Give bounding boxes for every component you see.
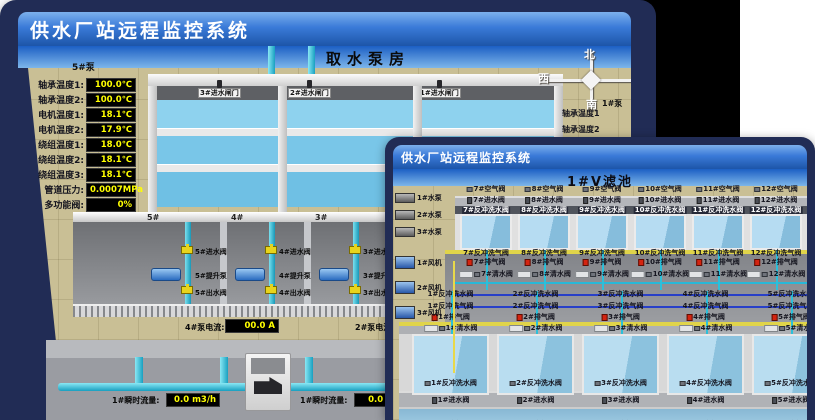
pipe-stub xyxy=(220,357,228,385)
panel-row: 多功能阀: 0% xyxy=(26,197,138,212)
filter-pool: 3#反冲洗水阀 xyxy=(582,334,659,395)
pump5-measure-panel: 5#泵 轴承温度1: 100.0℃ 轴承温度2: 100.0℃ xyxy=(26,60,138,212)
flow-label: 1#瞬时流量: xyxy=(112,395,159,406)
equipment-item: 3#风机 xyxy=(395,300,459,325)
backwash-water-valve[interactable]: 4#反冲洗水阀 xyxy=(683,291,729,298)
clean-water-valve[interactable]: 3#清水阀 xyxy=(594,325,648,332)
backwash-water-valve[interactable]: 5#反冲洗水阀 xyxy=(768,291,807,298)
panel-value-display: 18.1℃ xyxy=(86,108,136,122)
equipment-box xyxy=(509,325,523,332)
panel-value-display: 100.0℃ xyxy=(86,93,136,107)
bay-number: 3# xyxy=(315,213,327,222)
outlet-valve-icon[interactable] xyxy=(349,286,361,294)
desktop: 供水厂站远程监控系统 取水泵房 5#泵 轴承温度1: 100.0℃ xyxy=(0,0,815,420)
flow-label: 1#瞬时流量: xyxy=(300,395,347,406)
pool-valve-icon[interactable] xyxy=(509,381,515,386)
pipe-stub xyxy=(305,357,313,385)
backwash-water-valve-label: 3#反冲洗水阀 xyxy=(598,291,644,298)
outlet-valve-icon[interactable] xyxy=(181,286,193,294)
clean-water-valve-label: 4#清水阀 xyxy=(701,325,733,332)
backwash-air-valve-label: 5#反冲洗气阀 xyxy=(768,303,807,310)
inlet-valve-icon[interactable] xyxy=(265,246,277,254)
inlet-valve-icon[interactable] xyxy=(517,397,522,404)
pump-icon[interactable] xyxy=(395,227,415,237)
filter-cell-bottom: 3#反冲洗水阀 3#反冲洗气阀 3#排气阀 3#清水阀 3#反冲洗水阀 3#进水… xyxy=(578,291,663,420)
filter-cell-bottom: 5#反冲洗水阀 5#反冲洗气阀 5#排气阀 5#清水阀 5#反冲洗水阀 5#进水… xyxy=(748,291,807,420)
gate-icon[interactable] xyxy=(217,80,222,88)
exhaust-valve[interactable]: 5#排气阀 xyxy=(771,314,807,321)
pool-backwash-valve[interactable]: 4#反冲洗水阀 xyxy=(679,380,732,387)
panel-label: 绕组温度2: xyxy=(26,153,84,166)
inlet-gate[interactable]: 3#进水闸门 xyxy=(198,80,241,98)
exhaust-valve[interactable]: 3#排气阀 xyxy=(601,314,640,321)
pump-bay: 4# 4#进水阀 4#提升泵 4#出水阀 xyxy=(227,222,311,304)
pool-valve-label: 2#反冲洗水阀 xyxy=(516,380,562,387)
panel-value-display: 18.1℃ xyxy=(86,153,136,167)
inlet-valve[interactable]: 2#进水阀 xyxy=(517,397,555,404)
panel-row: 电机温度2: 17.9℃ xyxy=(26,122,138,137)
filter-pool: 5#反冲洗水阀 xyxy=(752,334,807,395)
filter-cell-bottom: 2#反冲洗水阀 2#反冲洗气阀 2#排气阀 2#清水阀 2#反冲洗水阀 2#进水… xyxy=(493,291,578,420)
clean-water-valve-label: 1#清水阀 xyxy=(446,325,478,332)
clean-water-valve-icon[interactable] xyxy=(439,326,445,331)
backwash-air-valve-label: 2#反冲洗气阀 xyxy=(513,303,559,310)
panel-label: 电机温度2: xyxy=(26,123,84,136)
equipment-box xyxy=(594,325,608,332)
pump-bay: 5# 5#进水阀 5#提升泵 5#出水阀 xyxy=(143,222,227,304)
inlet-valve-icon[interactable] xyxy=(772,397,777,404)
back-window-titlebar[interactable]: 供水厂站远程监控系统 xyxy=(18,12,631,46)
backwash-air-valve[interactable]: 2#反冲洗气阀 xyxy=(513,303,559,310)
clean-water-valve-label: 5#清水阀 xyxy=(786,325,807,332)
panel-value-display: 17.9℃ xyxy=(86,123,136,137)
pool-valve-icon[interactable] xyxy=(679,381,685,386)
inlet-valve-label: 3#进水阀 xyxy=(608,397,640,404)
equipment-box xyxy=(424,325,438,332)
panel-row: 绕组温度1: 18.0℃ xyxy=(26,137,138,152)
panel-label: 绕组温度3: xyxy=(26,168,84,181)
inlet-valve-icon[interactable] xyxy=(432,397,437,404)
inlet-gate[interactable]: 1#进水闸门 xyxy=(418,80,461,98)
panel-label: 管道压力: xyxy=(26,183,84,196)
equipment-label: 2#水泵 xyxy=(417,210,442,220)
filter-scene: 1#V滤池 1#水泵 2#水泵 3#水泵 xyxy=(393,169,807,420)
gate-icon[interactable] xyxy=(437,80,442,88)
bay-number: 4# xyxy=(231,213,243,222)
compass-star xyxy=(581,70,601,90)
clean-water-valve[interactable]: 2#清水阀 xyxy=(509,325,563,332)
panel-label: 多功能阀: xyxy=(26,198,84,211)
panel-row: 绕组温度2: 18.1℃ xyxy=(26,152,138,167)
gate-label: 1#进水闸门 xyxy=(418,88,461,98)
pump-icon[interactable] xyxy=(395,256,415,269)
exhaust-valve-label: 4#排气阀 xyxy=(693,314,725,321)
camera-panel xyxy=(251,358,285,374)
inlet-valve[interactable]: 4#进水阀 xyxy=(687,397,725,404)
panel-label: 轴承温度1: xyxy=(26,78,84,91)
inlet-valve-label: 4#进水阀 xyxy=(279,247,311,257)
current-label: 4#泵电流: xyxy=(185,322,224,333)
vent-pipe xyxy=(268,46,275,76)
filter-pool: 2#反冲洗水阀 xyxy=(497,334,574,395)
equipment-label: 1#风机 xyxy=(417,258,442,268)
inlet-valve-icon[interactable] xyxy=(602,397,607,404)
right-panel-label: 轴承温度1 xyxy=(562,108,631,124)
lift-pump-icon[interactable] xyxy=(151,268,181,281)
exhaust-valve-icon[interactable] xyxy=(771,314,777,321)
inlet-valve[interactable]: 1#进水阀 xyxy=(432,397,470,404)
pool-backwash-valve[interactable]: 3#反冲洗水阀 xyxy=(594,380,647,387)
pool-backwash-valve[interactable]: 1#反冲洗水阀 xyxy=(424,380,477,387)
pump-icon[interactable] xyxy=(395,281,415,294)
backwash-water-valve[interactable]: 2#反冲洗水阀 xyxy=(513,291,559,298)
pool-backwash-valve[interactable]: 2#反冲洗水阀 xyxy=(509,380,562,387)
clean-water-valve-icon[interactable] xyxy=(609,326,615,331)
exhaust-valve-label: 2#排气阀 xyxy=(523,314,555,321)
scene-title: 取水泵房 xyxy=(326,48,410,69)
clean-water-valve-icon[interactable] xyxy=(779,326,785,331)
inlet-gate[interactable]: 2#进水闸门 xyxy=(288,80,331,98)
backwash-water-valve-label: 2#反冲洗水阀 xyxy=(513,291,559,298)
inlet-valve-icon[interactable] xyxy=(349,246,361,254)
tank-divider xyxy=(148,86,157,215)
gate-icon[interactable] xyxy=(307,80,312,88)
inlet-valve[interactable]: 3#进水阀 xyxy=(602,397,640,404)
filter-cell-bottom: 4#反冲洗水阀 4#反冲洗气阀 4#排气阀 4#清水阀 4#反冲洗水阀 4#进水… xyxy=(663,291,748,420)
clean-water-valve[interactable]: 5#清水阀 xyxy=(764,325,807,332)
inlet-valve-icon[interactable] xyxy=(181,246,193,254)
backwash-air-valve[interactable]: 4#反冲洗气阀 xyxy=(683,303,729,310)
front-window: 供水厂站远程监控系统 1#V滤池 1#水泵 2#水泵 xyxy=(385,137,815,420)
equipment-item: 2#风机 xyxy=(395,275,459,300)
panel-label: 电机温度1: xyxy=(26,108,84,121)
panel-value-display: 18.0℃ xyxy=(86,138,136,152)
filter-pool: 4#反冲洗水阀 xyxy=(667,334,744,395)
clean-water-valve[interactable]: 4#清水阀 xyxy=(679,325,733,332)
inlet-valve-icon[interactable] xyxy=(687,397,692,404)
exhaust-valve-label: 3#排气阀 xyxy=(608,314,640,321)
backwash-water-valve-label: 5#反冲洗水阀 xyxy=(768,291,807,298)
panel-value-display: 18.1℃ xyxy=(86,168,136,182)
inlet-valve-label: 4#进水阀 xyxy=(693,397,725,404)
clean-water-valve[interactable]: 1#清水阀 xyxy=(424,325,478,332)
clean-water-valve-icon[interactable] xyxy=(524,326,530,331)
exhaust-valve[interactable]: 2#排气阀 xyxy=(516,314,555,321)
inlet-valve[interactable]: 5#进水阀 xyxy=(772,397,807,404)
panel-label: 轴承温度2: xyxy=(26,93,84,106)
right-panel-labels: 轴承温度1 轴承温度2 xyxy=(562,108,631,140)
lift-pump-label: 4#提升泵 xyxy=(279,271,311,281)
panel-value-display: 0% xyxy=(86,198,136,212)
tank-water-row xyxy=(148,100,563,128)
outlet-valve-label: 5#出水阀 xyxy=(195,288,227,298)
tank-divider xyxy=(278,86,287,215)
pipe-stub xyxy=(135,357,143,385)
tank-back-wall: 3#进水闸门 2#进水闸门 1#进水闸门 xyxy=(148,86,563,100)
exhaust-valve-icon[interactable] xyxy=(601,314,607,321)
outlet-valve-icon[interactable] xyxy=(265,286,277,294)
equipment-label: 1#水泵 xyxy=(417,193,442,203)
equipment-item: 2#水泵 xyxy=(395,206,459,223)
compass-north-label: 北 xyxy=(584,46,595,62)
backwash-air-valve[interactable]: 3#反冲洗气阀 xyxy=(598,303,644,310)
panel-label: 绕组温度1: xyxy=(26,138,84,151)
equipment-column: 1#水泵 2#水泵 3#水泵 1#风机 xyxy=(395,189,459,325)
pool-valve-label: 1#反冲洗水阀 xyxy=(431,380,477,387)
exhaust-valve[interactable]: 4#排气阀 xyxy=(686,314,725,321)
inlet-valve-label: 2#进水阀 xyxy=(523,397,555,404)
panel-row: 管道压力: 0.0007MPa xyxy=(26,182,138,197)
panel-value-display: 0.0007MPa xyxy=(86,183,136,197)
backwash-water-valve-label: 4#反冲洗水阀 xyxy=(683,291,729,298)
lift-pump-icon[interactable] xyxy=(319,268,349,281)
tank-beam xyxy=(148,128,563,136)
panel-row: 轴承温度2: 100.0℃ xyxy=(26,92,138,107)
current-display: 00.0 A xyxy=(225,319,279,333)
pump-icon[interactable] xyxy=(395,210,415,220)
filter-pool: 1#反冲洗水阀 xyxy=(412,334,489,395)
pool-valve-icon[interactable] xyxy=(764,381,770,386)
pool-valve-label: 3#反冲洗水阀 xyxy=(601,380,647,387)
equipment-label: 3#风机 xyxy=(417,308,442,318)
backwash-water-valve[interactable]: 3#反冲洗水阀 xyxy=(598,291,644,298)
equipment-item: 1#风机 xyxy=(395,250,459,275)
pool-valve-label: 5#反冲洗水阀 xyxy=(771,380,807,387)
lift-pump-icon[interactable] xyxy=(235,268,265,281)
panel-header: 5#泵 xyxy=(72,60,138,73)
clean-water-valve-label: 3#清水阀 xyxy=(616,325,648,332)
pump-icon[interactable] xyxy=(395,306,415,319)
camera-box[interactable] xyxy=(245,353,291,411)
exhaust-valve-icon[interactable] xyxy=(516,314,522,321)
backwash-air-valve-label: 3#反冲洗气阀 xyxy=(598,303,644,310)
panel-row: 轴承温度1: 100.0℃ xyxy=(26,77,138,92)
panel-rows: 轴承温度1: 100.0℃ 轴承温度2: 100.0℃ 电机温度1: 18.1℃ xyxy=(26,77,138,212)
inlet-valve-label: 1#进水阀 xyxy=(438,397,470,404)
inlet-valve-label: 5#进水阀 xyxy=(195,247,227,257)
clean-water-valve-label: 2#清水阀 xyxy=(531,325,563,332)
gate-label: 3#进水闸门 xyxy=(198,88,241,98)
inlet-valve-label: 5#进水阀 xyxy=(778,397,807,404)
equipment-label: 3#水泵 xyxy=(417,227,442,237)
pool-valve-icon[interactable] xyxy=(594,381,600,386)
panel-value-display: 100.0℃ xyxy=(86,78,136,92)
panel-row: 电机温度1: 18.1℃ xyxy=(26,107,138,122)
equipment-box xyxy=(679,325,693,332)
equipment-item: 3#水泵 xyxy=(395,223,459,240)
front-window-titlebar[interactable]: 供水厂站远程监控系统 xyxy=(393,145,807,169)
outlet-valve-label: 4#出水阀 xyxy=(279,288,311,298)
pool-valve-label: 4#反冲洗水阀 xyxy=(686,380,732,387)
equipment-item: 1#水泵 xyxy=(395,189,459,206)
backwash-air-valve[interactable]: 5#反冲洗气阀 xyxy=(768,303,807,310)
pump-bay: 3# 3#进水阀 3#提升泵 3#出水阀 xyxy=(311,222,395,304)
pool-valve-icon[interactable] xyxy=(424,381,430,386)
compass-west-label: 西 xyxy=(538,70,549,86)
clean-water-valve-icon[interactable] xyxy=(694,326,700,331)
backwash-air-valve-label: 4#反冲洗气阀 xyxy=(683,303,729,310)
bay-number: 5# xyxy=(147,213,159,222)
panel-row: 绕组温度3: 18.1℃ xyxy=(26,167,138,182)
equipment-box xyxy=(764,325,778,332)
lift-pump-label: 5#提升泵 xyxy=(195,271,227,281)
flow-display: 0.0 m3/h xyxy=(166,393,220,407)
pool-backwash-valve[interactable]: 5#反冲洗水阀 xyxy=(764,380,807,387)
exhaust-valve-label: 5#排气阀 xyxy=(778,314,807,321)
pump-icon[interactable] xyxy=(395,193,415,203)
gate-row: 3#进水闸门 2#进水闸门 1#进水闸门 xyxy=(148,86,563,100)
exhaust-valve-icon[interactable] xyxy=(686,314,692,321)
vent-pipe xyxy=(308,46,315,76)
equipment-label: 2#风机 xyxy=(417,283,442,293)
camera-icon xyxy=(254,377,282,394)
gate-label: 2#进水闸门 xyxy=(288,88,331,98)
